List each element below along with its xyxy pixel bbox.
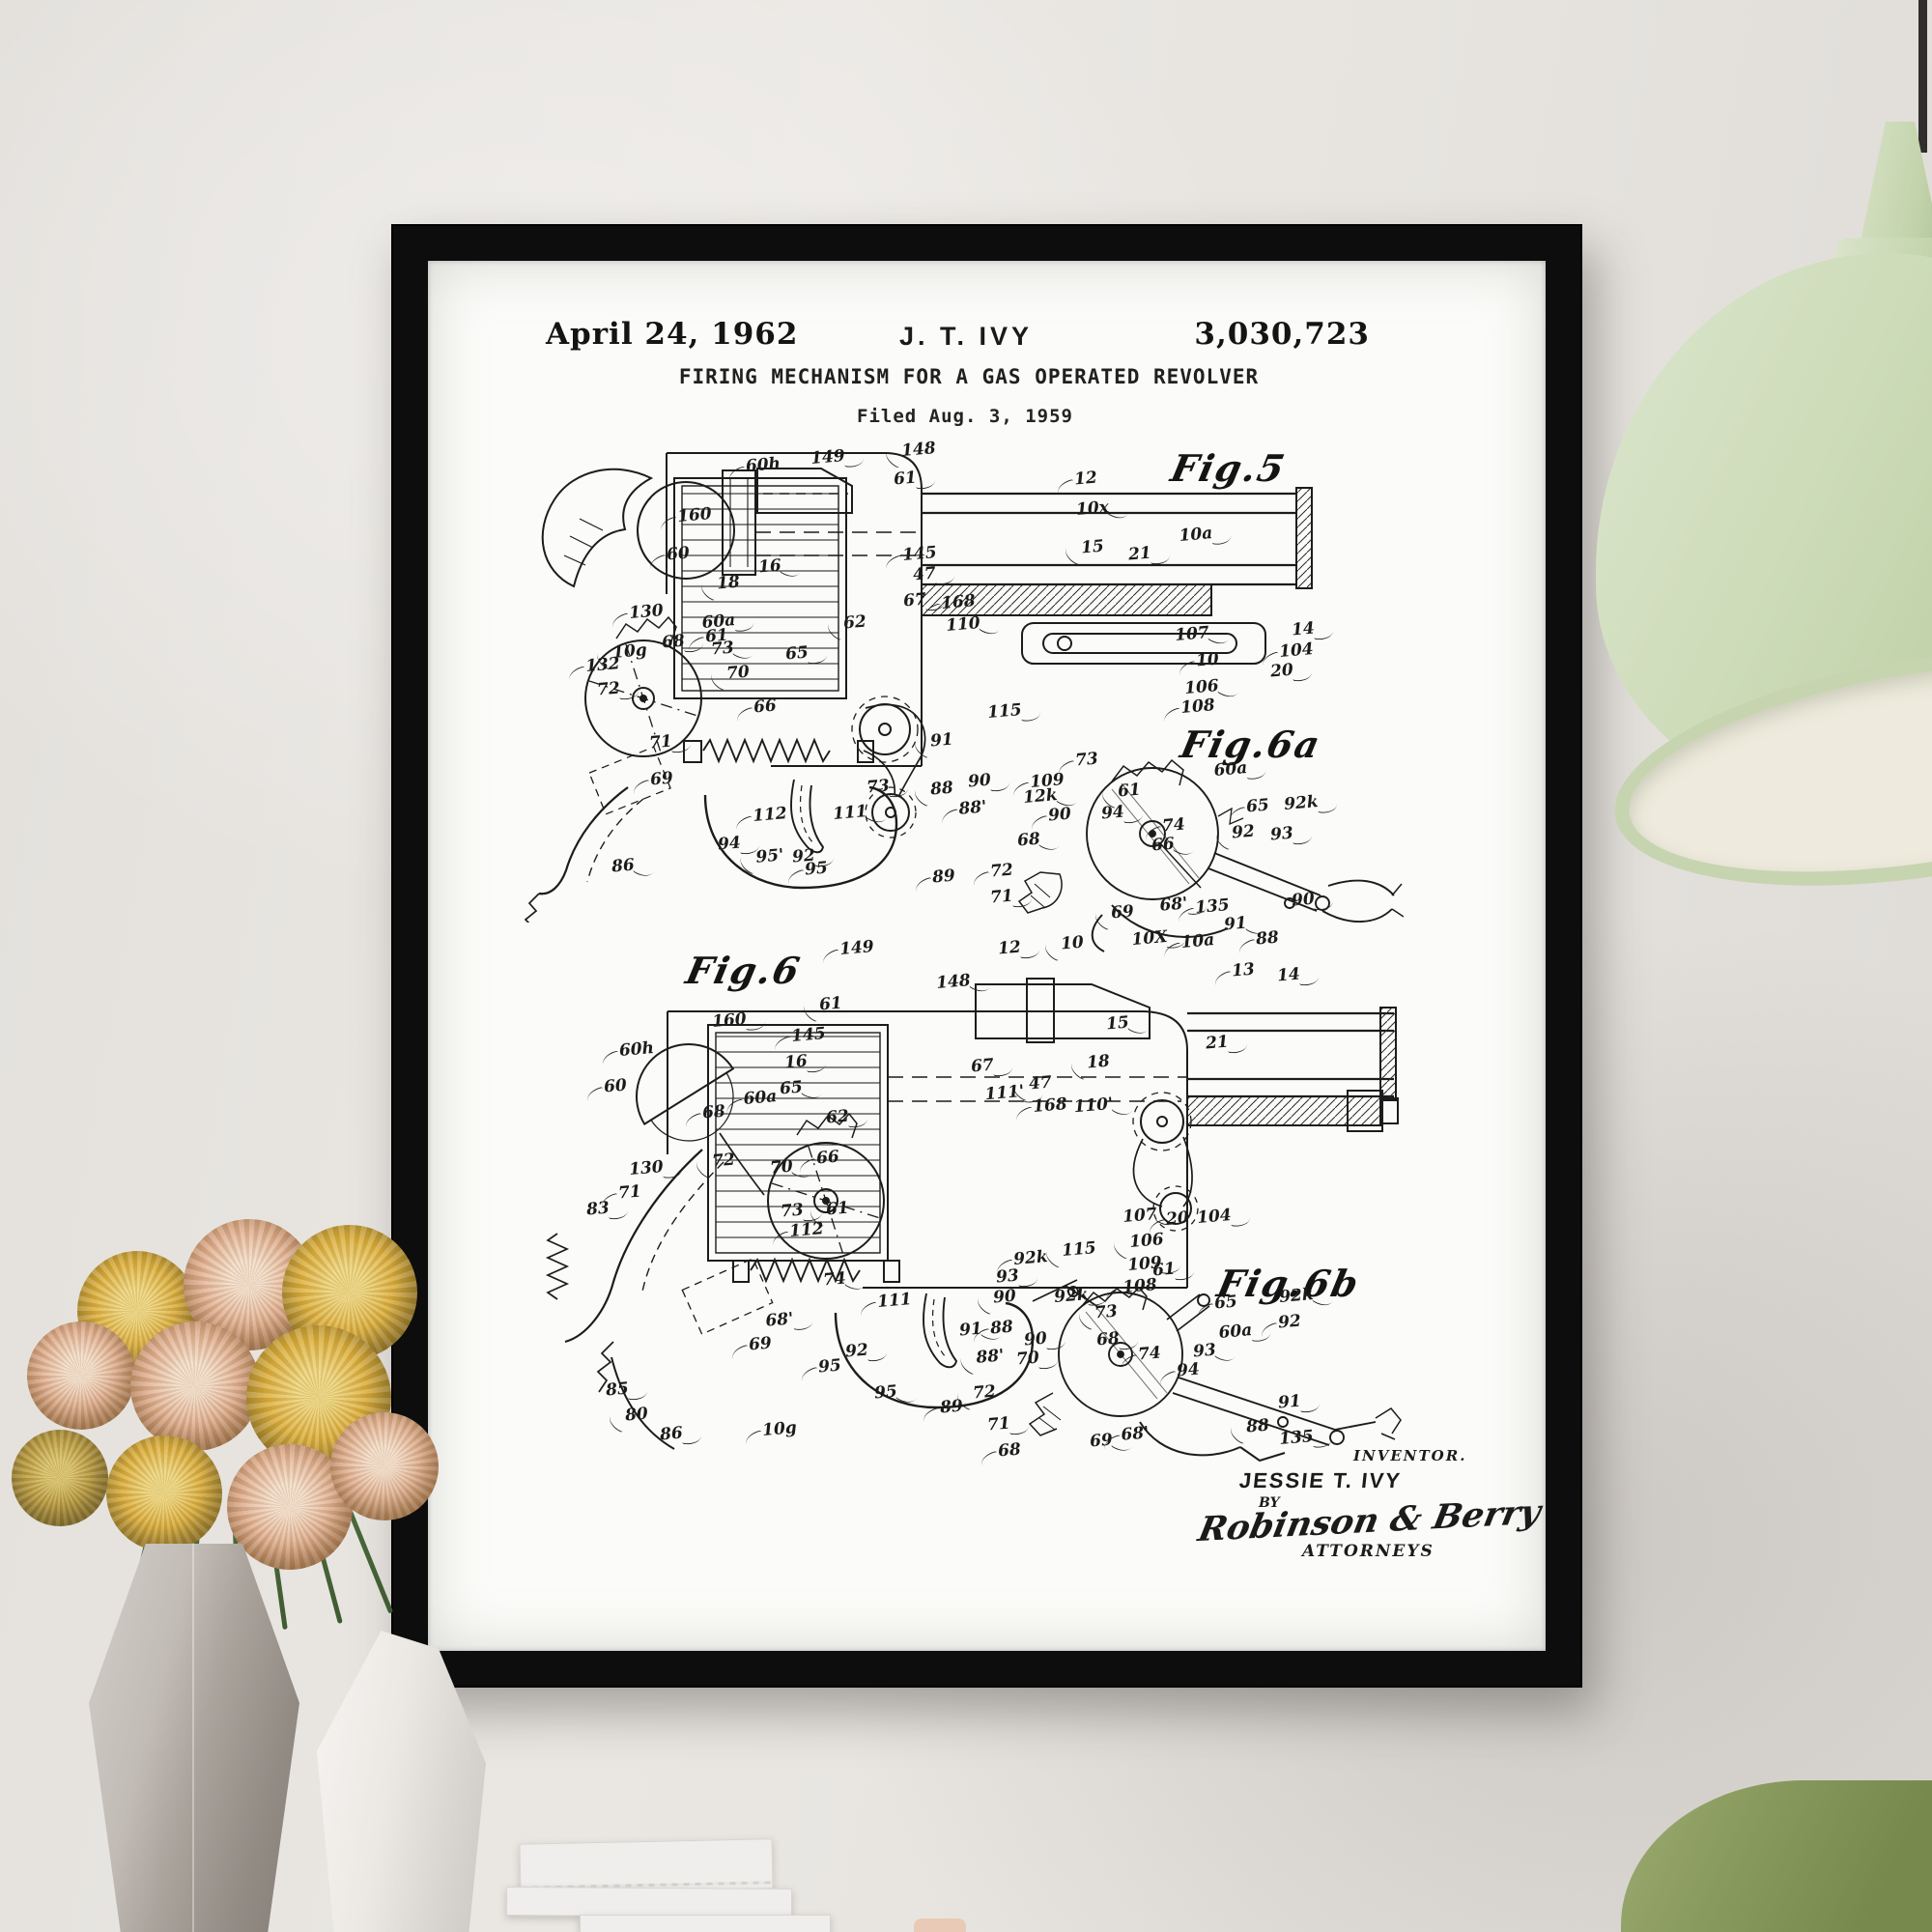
ref-label-72: 72 xyxy=(972,1384,996,1403)
chrysanthemum-flower xyxy=(27,1321,135,1430)
ref-label-68: 68 xyxy=(1095,1331,1120,1350)
inventor-name: Jessie T. Ivy xyxy=(1238,1468,1404,1493)
ref-label-90: 90 xyxy=(992,1289,1016,1307)
patent-paper: April 24, 1962 J. T. IVY 3,030,723 FIRIN… xyxy=(428,261,1546,1651)
ref-label-60a: 60a xyxy=(1218,1322,1253,1342)
small-peach-object xyxy=(914,1918,966,1932)
ref-label-91: 91 xyxy=(1277,1394,1301,1412)
ref-label-70: 70 xyxy=(1015,1350,1039,1369)
chrysanthemum-flower xyxy=(12,1430,108,1526)
book-stack-middle xyxy=(506,1887,792,1918)
ref-label-68': 68' xyxy=(1121,1425,1150,1443)
attorneys-label: ATTORNEYS xyxy=(1302,1542,1435,1561)
lamp-cord xyxy=(1918,0,1927,153)
book-stack-bottom xyxy=(580,1915,831,1932)
ref-label-92k: 92k xyxy=(1279,1287,1315,1306)
chrysanthemum-flower xyxy=(130,1321,260,1451)
ref-label-93: 93 xyxy=(995,1268,1019,1287)
room-scene: April 24, 1962 J. T. IVY 3,030,723 FIRIN… xyxy=(0,0,1932,1932)
ref-label-93: 93 xyxy=(1192,1343,1216,1361)
ref-label-65: 65 xyxy=(1213,1294,1237,1313)
ref-label-73: 73 xyxy=(1094,1304,1118,1322)
chrysanthemum-flower xyxy=(106,1435,222,1551)
ref-label-68: 68 xyxy=(997,1442,1021,1461)
picture-frame: April 24, 1962 J. T. IVY 3,030,723 FIRIN… xyxy=(391,224,1582,1688)
ref-label-74: 74 xyxy=(1137,1346,1161,1364)
ref-label-92: 92 xyxy=(1277,1314,1301,1332)
ref-label-71: 71 xyxy=(986,1416,1010,1435)
inventor-label: INVENTOR. xyxy=(1353,1447,1466,1464)
fig6b-label-layer: 92k9390616592k9260a736874939470727168696… xyxy=(428,261,1546,1651)
ref-label-94: 94 xyxy=(1176,1362,1200,1380)
geometric-vase xyxy=(89,1544,299,1932)
ref-label-88: 88 xyxy=(1245,1418,1269,1436)
ref-label-135: 135 xyxy=(1279,1429,1315,1448)
ref-label-61: 61 xyxy=(1151,1262,1176,1280)
signature-block: INVENTOR. Jessie T. Ivy BY Robinson & Be… xyxy=(1104,1447,1452,1573)
book-stack-top xyxy=(519,1838,773,1893)
chrysanthemum-flower xyxy=(330,1412,439,1520)
